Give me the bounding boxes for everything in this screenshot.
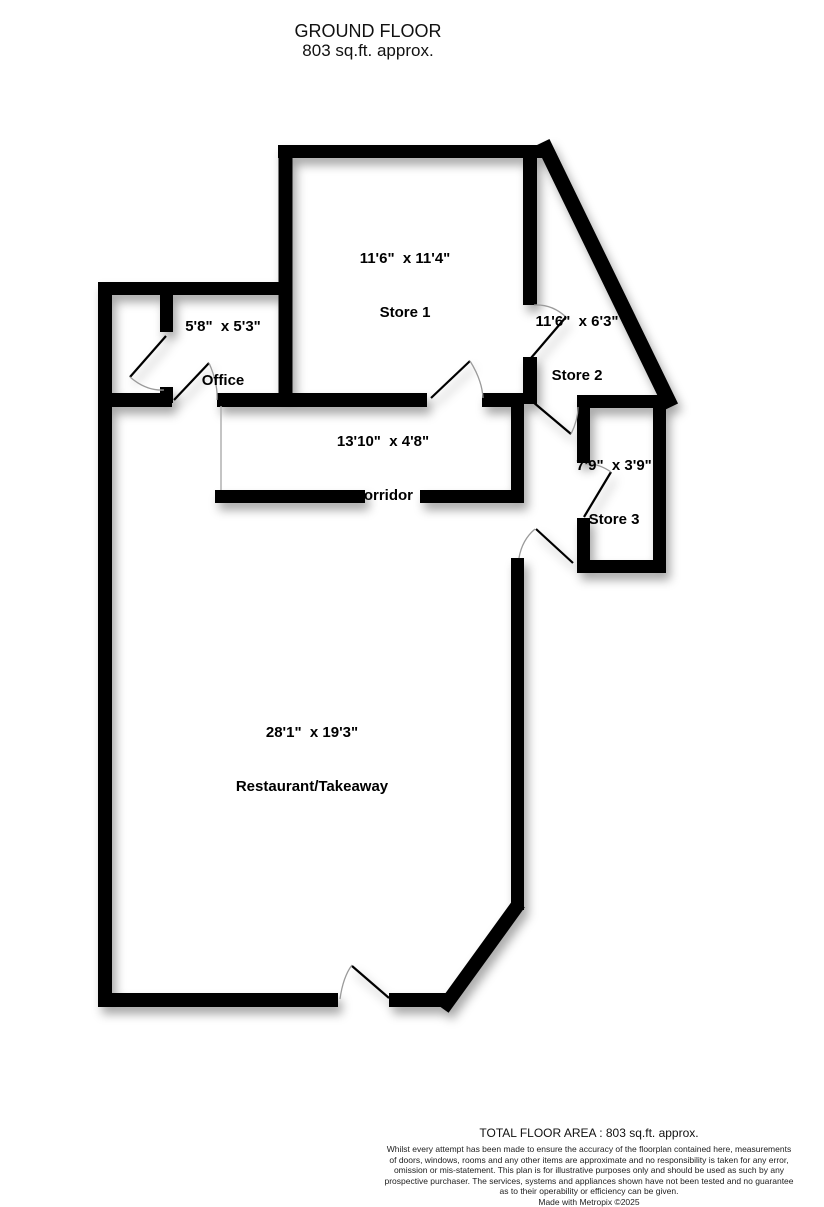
room-name: Store 1 <box>360 304 451 322</box>
room-label-store2: 11'6" x 6'3" Store 2 <box>535 277 618 403</box>
door-leaf-store1 <box>431 361 470 398</box>
room-label-office: 5'8" x 5'3" Office <box>185 282 261 408</box>
door-leaf-main-entrance <box>352 966 389 998</box>
room-label-corridor: 13'10" x 4'8" Corridor <box>337 397 429 523</box>
disclaimer-line: as to their operability or efficiency ca… <box>359 1186 819 1197</box>
floorplan-drawing <box>0 0 824 1200</box>
room-label-store1: 11'6" x 11'4" Store 1 <box>360 214 451 340</box>
wall-bottom-diagonal <box>447 909 515 1003</box>
room-dims: 7'9" x 3'9" <box>576 457 652 475</box>
door-leaf-office-side <box>130 336 166 377</box>
room-name: Office <box>185 372 261 390</box>
disclaimer-line: omission or mis-statement. This plan is … <box>359 1165 819 1176</box>
door-leaf-restaurant-side <box>536 529 573 563</box>
total-floor-area: TOTAL FLOOR AREA : 803 sq.ft. approx. <box>359 1126 819 1140</box>
room-name: Store 3 <box>576 511 652 529</box>
door-arc-store1 <box>470 361 483 398</box>
room-dims: 11'6" x 6'3" <box>535 313 618 331</box>
room-label-restaurant: 28'1" x 19'3" Restaurant/Takeaway <box>236 688 388 814</box>
floorplan-page: { "header": { "title": "GROUND FLOOR", "… <box>0 0 824 1200</box>
disclaimer-line: of doors, windows, rooms and any other i… <box>359 1155 819 1166</box>
room-label-store3: 7'9" x 3'9" Store 3 <box>576 421 652 547</box>
made-with-credit: Made with Metropix ©2025 <box>359 1197 819 1207</box>
room-dims: 5'8" x 5'3" <box>185 318 261 336</box>
room-name: Restaurant/Takeaway <box>236 778 388 796</box>
room-dims: 28'1" x 19'3" <box>236 724 388 742</box>
disclaimer-line: prospective purchaser. The services, sys… <box>359 1176 819 1187</box>
room-dims: 13'10" x 4'8" <box>337 433 429 451</box>
disclaimer-line: Whilst every attempt has been made to en… <box>359 1144 819 1155</box>
door-arc-office-side <box>130 377 164 390</box>
door-arc-main-entrance <box>340 965 352 999</box>
plan-footer: TOTAL FLOOR AREA : 803 sq.ft. approx. Wh… <box>359 1126 819 1207</box>
door-arc-restaurant-side <box>519 529 535 558</box>
room-dims: 11'6" x 11'4" <box>360 250 451 268</box>
door-leaf-store2-vestibule <box>533 402 571 434</box>
room-name: Store 2 <box>535 367 618 385</box>
room-name: Corridor <box>337 487 429 505</box>
